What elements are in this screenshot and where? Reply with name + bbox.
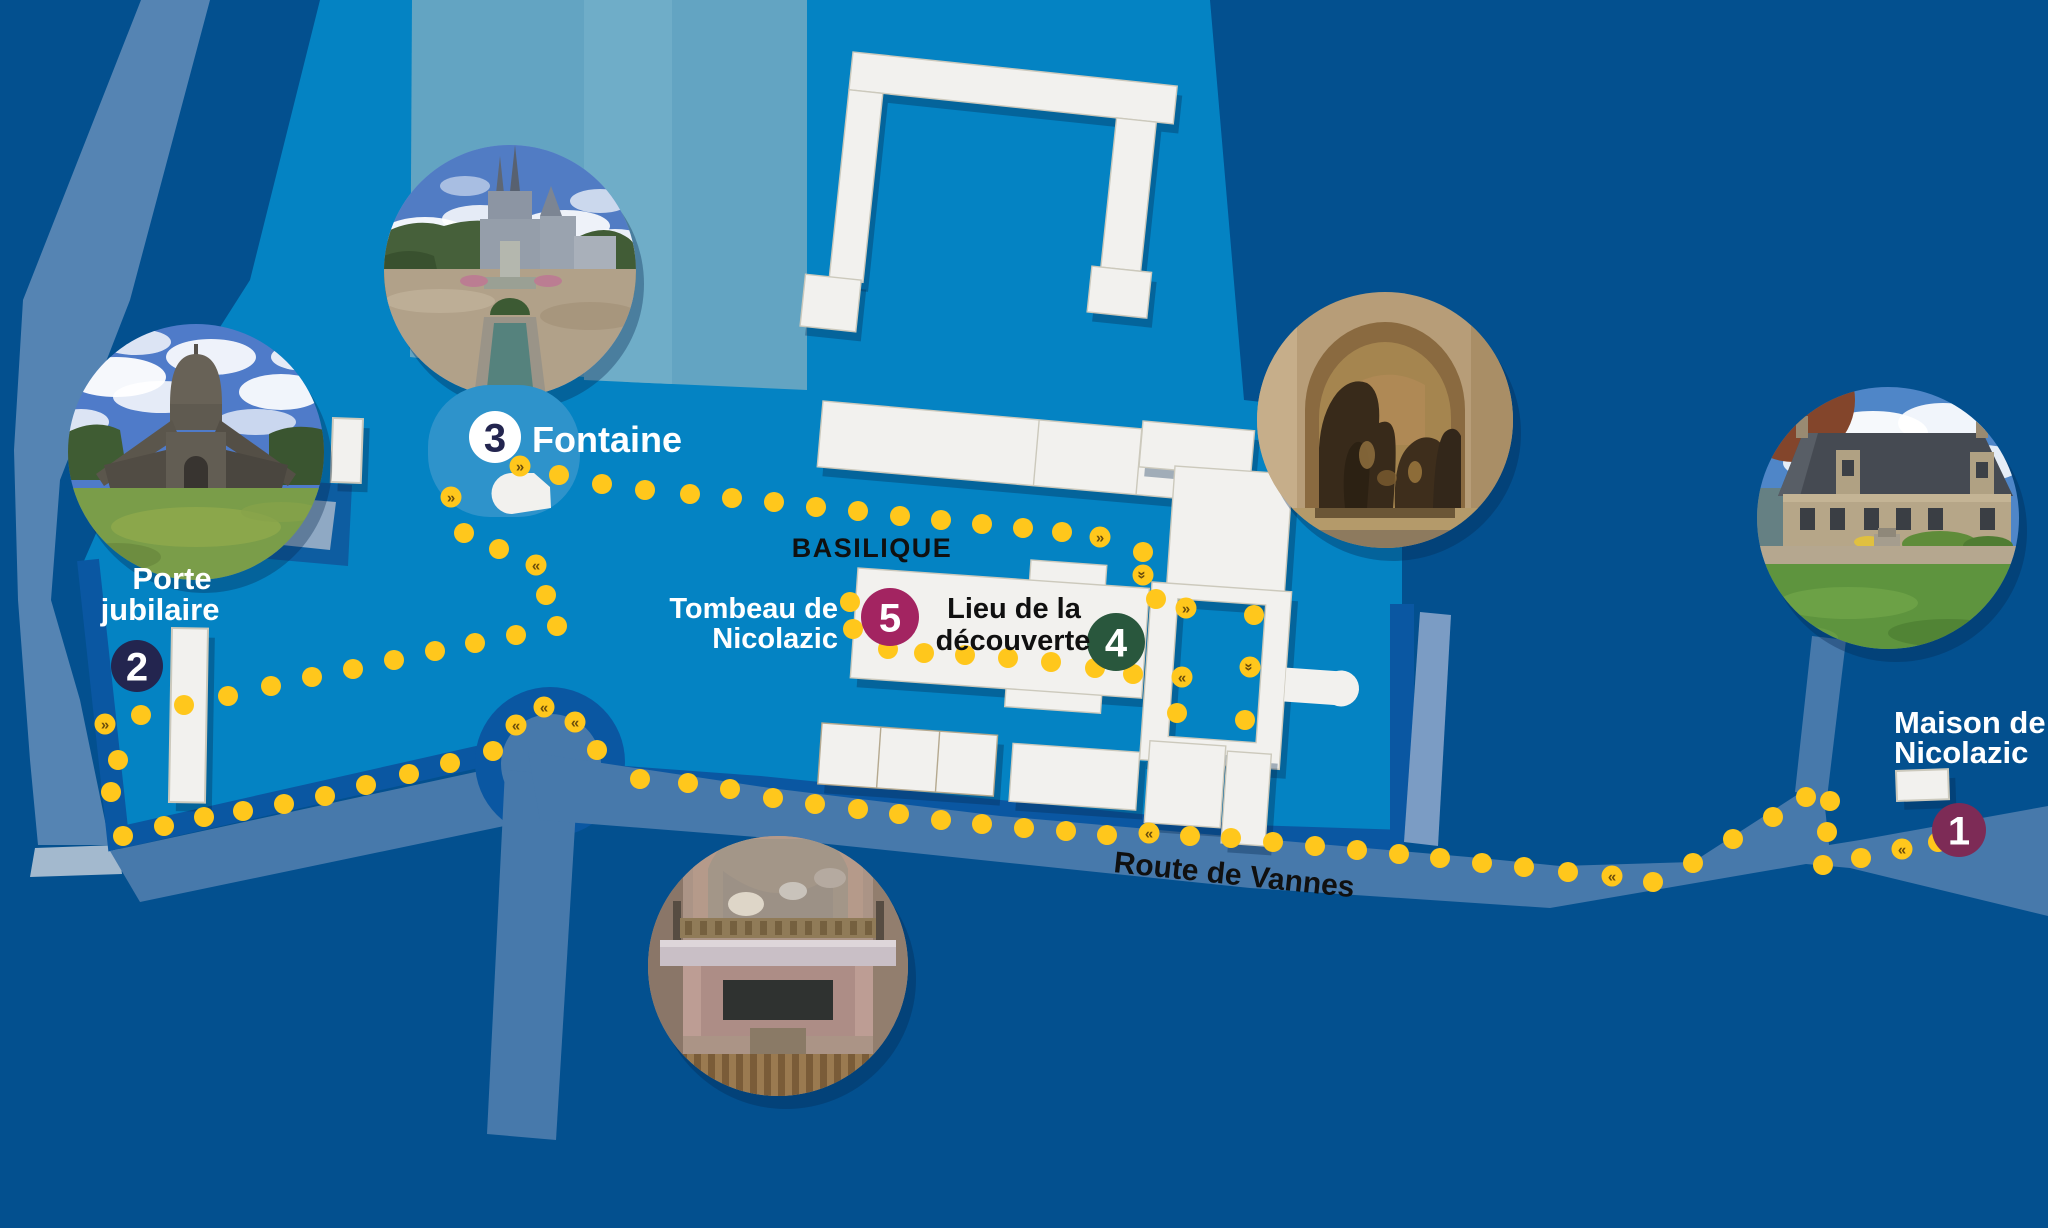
svg-text:découverte: découverte — [936, 625, 1091, 657]
svg-text:«: « — [1178, 670, 1186, 687]
svg-text:Tombeau de: Tombeau de — [669, 593, 838, 625]
svg-text:»: » — [101, 717, 109, 734]
svg-text:»: » — [1096, 530, 1104, 547]
svg-text:«: « — [540, 700, 548, 717]
svg-text:2: 2 — [126, 645, 148, 689]
svg-text:Nicolazic: Nicolazic — [712, 623, 838, 655]
svg-text:5: 5 — [879, 596, 901, 640]
svg-text:Lieu de la: Lieu de la — [947, 593, 1082, 625]
svg-text:»: » — [1241, 663, 1258, 671]
svg-text:«: « — [532, 558, 540, 575]
svg-text:«: « — [1145, 826, 1153, 843]
svg-text:BASILIQUE: BASILIQUE — [792, 533, 953, 563]
svg-text:«: « — [512, 718, 520, 735]
svg-text:1: 1 — [1948, 809, 1970, 853]
svg-text:Porte: Porte — [132, 561, 211, 596]
svg-text:Nicolazic: Nicolazic — [1894, 735, 2028, 770]
svg-text:Fontaine: Fontaine — [532, 419, 682, 460]
svg-text:»: » — [447, 490, 455, 507]
svg-text:jubilaire: jubilaire — [100, 592, 220, 627]
svg-text:«: « — [1608, 869, 1616, 886]
svg-text:»: » — [1134, 571, 1151, 579]
svg-text:»: » — [1182, 601, 1190, 618]
svg-text:«: « — [571, 715, 579, 732]
svg-text:»: » — [516, 459, 524, 476]
svg-text:4: 4 — [1105, 621, 1128, 665]
svg-text:«: « — [1898, 842, 1906, 859]
svg-text:3: 3 — [484, 416, 506, 460]
